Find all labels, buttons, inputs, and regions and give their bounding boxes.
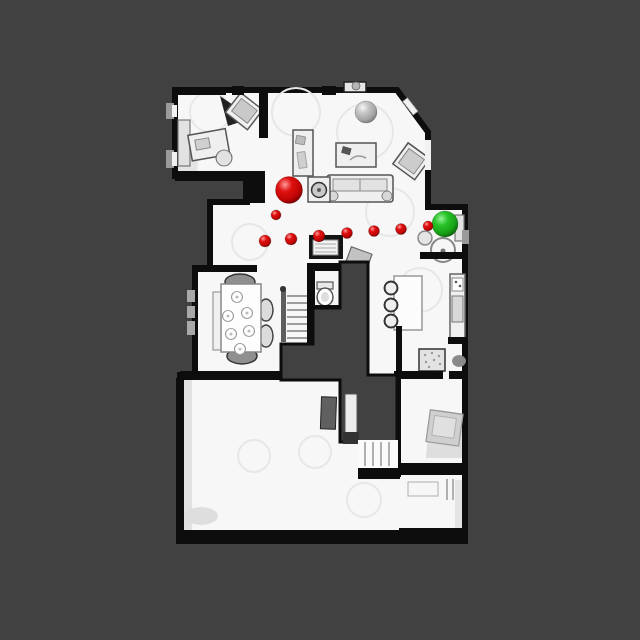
floorplan-map [0,0,640,640]
dishwasher [452,296,463,322]
neutral-sphere-marker [355,101,377,123]
powder-room [317,282,333,306]
path-waypoint-marker [423,221,433,231]
path-waypoint-marker [369,226,380,237]
shelf [178,120,190,166]
door [345,394,357,436]
mat [408,482,438,496]
path-waypoint-marker [271,210,281,220]
kitchen-basin [452,355,466,367]
path-waypoint-marker [342,228,353,239]
top-knob [352,82,360,90]
sink [452,278,463,291]
stair-treads [287,296,307,338]
dark-crate [343,432,359,444]
start-marker [276,177,303,204]
path-waypoint-marker [313,230,325,242]
newel-post [280,286,286,292]
entry-steps [358,440,398,468]
path-waypoint-marker [396,224,407,235]
goal-marker [432,211,458,237]
entry-room [426,410,463,446]
bar-stools [385,282,398,328]
path-waypoint-marker [259,235,271,247]
stair-rail [281,289,286,342]
side-table [336,143,376,167]
dark-hutch [320,397,336,430]
desk-chair [216,150,232,166]
nook-chair [418,231,432,245]
path-waypoint-marker [285,233,297,245]
